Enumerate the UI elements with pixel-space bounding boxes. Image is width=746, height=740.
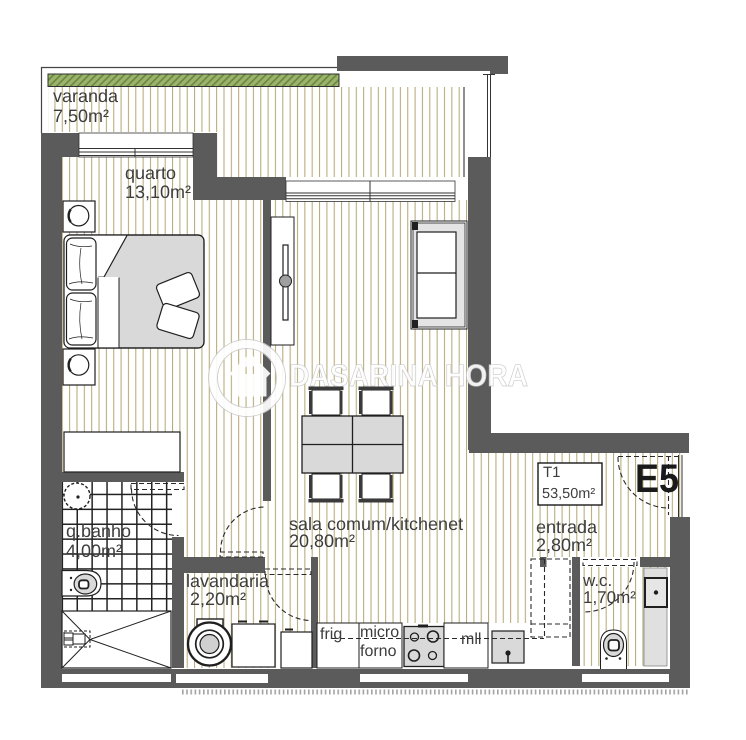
svg-text:quarto: quarto <box>125 163 176 183</box>
svg-text:forno: forno <box>360 643 397 660</box>
svg-text:20,80m²: 20,80m² <box>289 531 355 551</box>
svg-text:varanda: varanda <box>53 86 119 106</box>
svg-text:4,00m²: 4,00m² <box>66 541 122 561</box>
svg-text:micro: micro <box>360 624 399 641</box>
svg-text:2,20m²: 2,20m² <box>190 589 246 609</box>
svg-text:q.banho: q.banho <box>66 521 131 541</box>
svg-text:mll: mll <box>461 631 481 648</box>
svg-text:13,10m²: 13,10m² <box>125 182 191 202</box>
svg-text:lavandaria: lavandaria <box>186 571 270 591</box>
svg-text:2,80m²: 2,80m² <box>536 535 592 555</box>
svg-text:frig: frig <box>320 626 342 643</box>
svg-text:1,70m²: 1,70m² <box>583 588 636 607</box>
svg-text:entrada: entrada <box>536 517 598 537</box>
svg-text:T1: T1 <box>543 464 561 481</box>
svg-text:7,50m²: 7,50m² <box>53 106 109 126</box>
svg-text:53,50m²: 53,50m² <box>542 486 595 502</box>
svg-text:E5: E5 <box>635 457 679 501</box>
svg-text:DASARINA HORA: DASARINA HORA <box>289 358 528 393</box>
